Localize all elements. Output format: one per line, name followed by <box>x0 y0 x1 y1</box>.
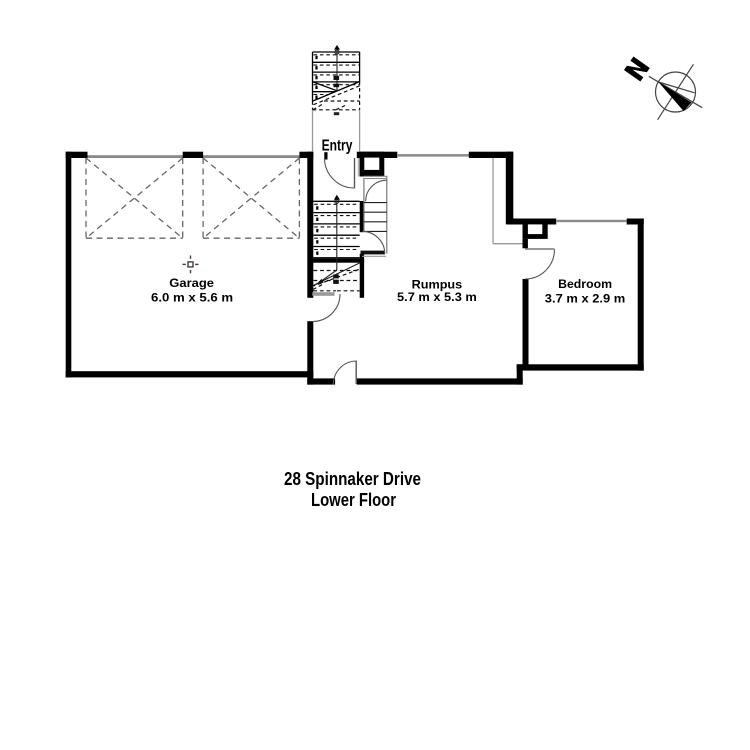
svg-text:5.7 m x 5.3 m: 5.7 m x 5.3 m <box>397 290 477 304</box>
svg-text:Garage: Garage <box>169 276 214 290</box>
svg-text:6.0 m x 5.6 m: 6.0 m x 5.6 m <box>151 291 233 305</box>
svg-text:Bedroom: Bedroom <box>558 277 612 291</box>
svg-text:Entry: Entry <box>322 137 353 154</box>
svg-text:Rumpus: Rumpus <box>412 277 463 291</box>
svg-text:Lower Floor: Lower Floor <box>311 490 396 510</box>
svg-text:3.7 m x 2.9 m: 3.7 m x 2.9 m <box>545 292 626 306</box>
svg-text:28 Spinnaker Drive: 28 Spinnaker Drive <box>284 469 421 489</box>
